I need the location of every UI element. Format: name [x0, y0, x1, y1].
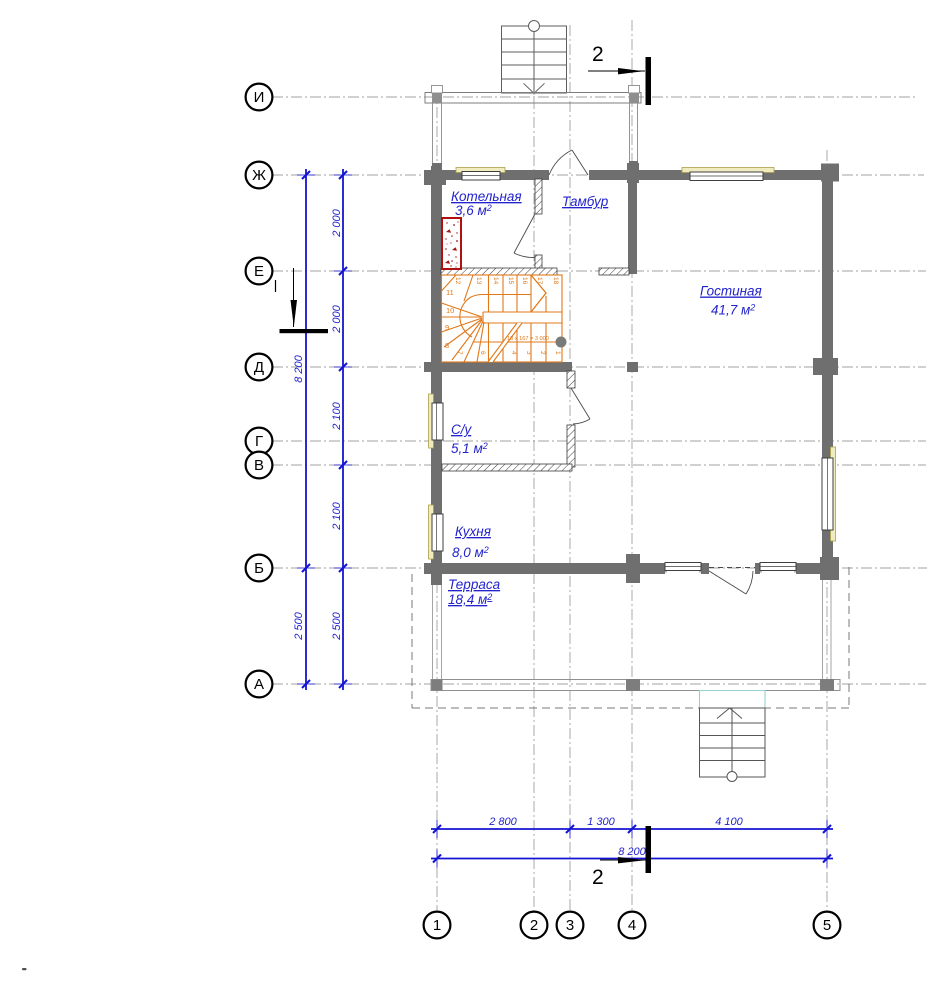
svg-text:Б: Б	[254, 560, 264, 577]
svg-text:3: 3	[525, 351, 532, 355]
svg-text:2 000: 2 000	[331, 208, 343, 237]
svg-text:8: 8	[445, 341, 449, 350]
svg-text:Котельная: Котельная	[451, 189, 522, 204]
svg-text:2 000: 2 000	[331, 304, 343, 333]
svg-text:10: 10	[446, 306, 454, 315]
svg-text:2 100: 2 100	[331, 501, 343, 530]
svg-text:8 200: 8 200	[618, 846, 646, 858]
svg-text:15: 15	[507, 277, 514, 285]
svg-text:4: 4	[628, 917, 636, 934]
svg-text:2: 2	[592, 43, 604, 66]
svg-text:12: 12	[454, 277, 461, 285]
svg-text:41,7 м2: 41,7 м2	[711, 303, 755, 318]
svg-text:3: 3	[566, 917, 574, 934]
svg-text:Терраса: Терраса	[448, 577, 501, 592]
svg-text:14: 14	[492, 277, 499, 285]
svg-text:В: В	[254, 457, 264, 474]
svg-text:3,6 м2: 3,6 м2	[455, 203, 492, 218]
svg-text:8 200: 8 200	[293, 354, 305, 382]
svg-text:4 100: 4 100	[715, 816, 743, 828]
svg-text:Г: Г	[255, 433, 263, 450]
svg-text:16: 16	[521, 277, 528, 285]
svg-text:18: 18	[552, 277, 559, 285]
svg-text:5: 5	[823, 917, 831, 934]
svg-text:5,1 м2: 5,1 м2	[451, 441, 488, 456]
svg-text:2: 2	[530, 917, 538, 934]
svg-text:17: 17	[536, 277, 543, 285]
svg-text:13: 13	[475, 277, 482, 285]
svg-text:2: 2	[539, 351, 546, 355]
svg-text:2 500: 2 500	[331, 611, 343, 640]
svg-text:2: 2	[592, 866, 604, 889]
svg-text:18 x 167 = 3 000: 18 x 167 = 3 000	[507, 336, 549, 342]
svg-text:9: 9	[445, 323, 449, 332]
svg-text:Кухня: Кухня	[455, 524, 491, 539]
svg-text:2 500: 2 500	[293, 611, 305, 640]
svg-text:1: 1	[554, 351, 561, 355]
svg-text:Гостиная: Гостиная	[700, 284, 762, 299]
svg-text:11: 11	[446, 288, 454, 297]
svg-text:18,4 м2: 18,4 м2	[448, 592, 492, 607]
svg-text:6: 6	[479, 351, 486, 355]
svg-text:1: 1	[433, 917, 441, 934]
svg-text:1 300: 1 300	[587, 816, 615, 828]
svg-text:И: И	[254, 89, 265, 106]
svg-text:Е: Е	[254, 263, 264, 280]
svg-text:А: А	[254, 676, 264, 693]
svg-text:С/у: С/у	[451, 422, 473, 437]
svg-text:2 800: 2 800	[488, 816, 517, 828]
svg-text:Ж: Ж	[252, 167, 266, 184]
svg-text:8,0 м2: 8,0 м2	[452, 545, 489, 560]
svg-text:Д: Д	[254, 359, 264, 376]
svg-text:2 100: 2 100	[331, 401, 343, 430]
svg-text:4: 4	[510, 351, 517, 355]
svg-text:Тамбур: Тамбур	[562, 194, 609, 209]
svg-text:7: 7	[456, 351, 463, 355]
